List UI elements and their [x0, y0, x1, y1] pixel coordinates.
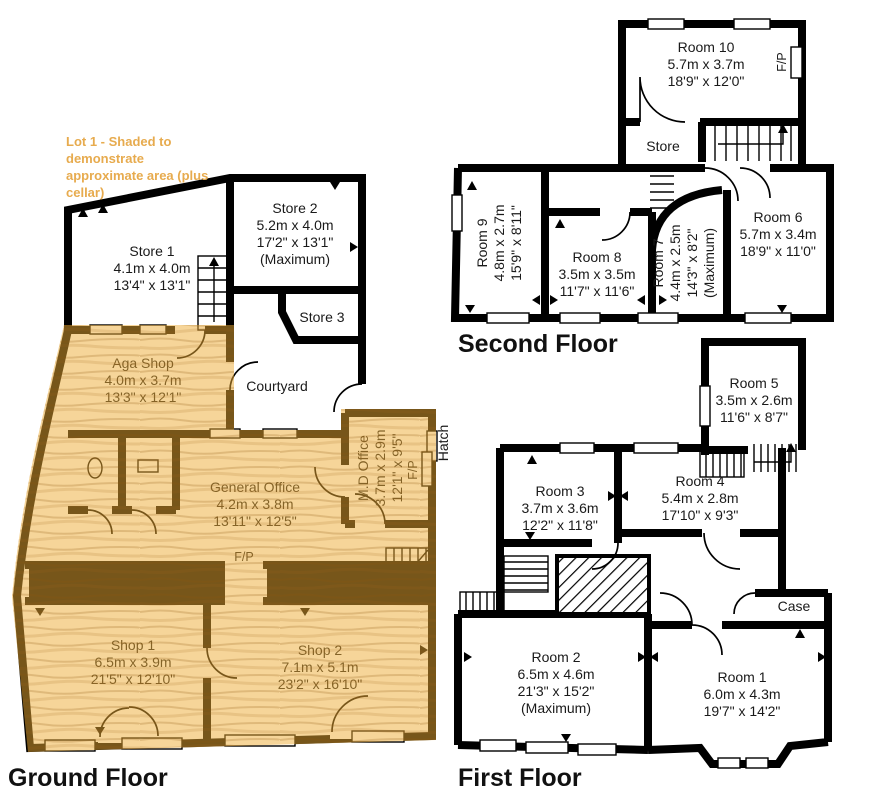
room-name: Room 7: [650, 238, 666, 287]
lot1-note-line: demonstrate: [66, 151, 144, 166]
room-label-room-10: Room 10 5.7m x 3.7m 18'9" x 12'0": [667, 39, 744, 89]
ground-floor-title: Ground Floor: [8, 764, 168, 792]
fp-label-room-10: F/P: [775, 52, 789, 71]
room10-fp-box: [791, 47, 802, 78]
ground-floor-plan: Store 1 4.1m x 4.0m 13'4" x 13'1" Store …: [8, 134, 451, 792]
lot1-note-line: cellar): [66, 185, 104, 200]
second-floor-title: Second Floor: [458, 330, 618, 358]
hatched-void-block: [557, 556, 649, 614]
room-imperial: 21'3" x 15'2": [518, 683, 595, 699]
lot1-woodgrain-texture: [12, 325, 436, 752]
room-imperial: 19'7" x 14'2": [704, 703, 781, 719]
lot1-note-line: Lot 1 - Shaded to: [66, 134, 172, 149]
room-name: Store 1: [129, 243, 174, 259]
room-metric: 3.7m x 3.6m: [521, 500, 598, 516]
room-metric: 5.2m x 4.0m: [256, 217, 333, 233]
room-name: Room 4: [675, 473, 724, 489]
room-imperial: 17'2" x 13'1": [257, 234, 334, 250]
room-imperial: 12'2" x 11'8": [522, 517, 598, 533]
room-name: Room 5: [729, 375, 778, 391]
first-floor-title: First Floor: [458, 764, 582, 792]
room-metric: 5.7m x 3.4m: [739, 226, 816, 242]
hatch-label: Hatch: [435, 425, 451, 462]
room-label-courtyard: Courtyard: [246, 378, 307, 394]
room-note: (Maximum): [260, 251, 330, 267]
room-imperial: 14'3" x 8'2": [684, 228, 700, 297]
room-metric: 3.5m x 3.5m: [558, 266, 635, 282]
second-floor-plan: Room 10 5.7m x 3.7m 18'9" x 12'0" F/P St…: [452, 19, 830, 358]
room-imperial: 17'10" x 9'3": [662, 507, 739, 523]
lot1-note-line: approximate area (plus: [66, 168, 208, 183]
room-imperial: 18'9" x 11'0": [740, 243, 816, 259]
room-metric: 5.4m x 2.8m: [661, 490, 738, 506]
room-name: Room 10: [678, 39, 735, 55]
room-name: Store 2: [272, 200, 317, 216]
room-name: Room 1: [717, 669, 766, 685]
first-floor-plan: Room 5 3.5m x 2.6m 11'6" x 8'7" Room 3 3…: [458, 342, 828, 792]
floorplan-page: Store 1 4.1m x 4.0m 13'4" x 13'1" Store …: [0, 0, 871, 800]
room-metric: 5.7m x 3.7m: [667, 56, 744, 72]
room-imperial: 18'9" x 12'0": [668, 73, 745, 89]
room-imperial: 15'9" x 8'11": [508, 205, 524, 281]
room-note: (Maximum): [521, 700, 591, 716]
room-metric: 4.1m x 4.0m: [113, 260, 190, 276]
room-metric: 4.8m x 2.7m: [491, 204, 507, 281]
floorplan-drawing: Store 1 4.1m x 4.0m 13'4" x 13'1" Store …: [0, 0, 871, 800]
room-imperial: 13'4" x 13'1": [114, 277, 191, 293]
room-metric: 6.0m x 4.3m: [703, 686, 780, 702]
room-imperial: 11'6" x 8'7": [720, 409, 788, 425]
room-imperial: 11'7" x 11'6": [560, 283, 635, 299]
room-name: Room 2: [531, 649, 580, 665]
room-label-case: Case: [778, 598, 811, 614]
room-note: (Maximum): [701, 228, 717, 298]
room-metric: 6.5m x 4.6m: [517, 666, 594, 682]
room-name: Room 6: [753, 209, 802, 225]
room-metric: 4.4m x 2.5m: [667, 224, 683, 301]
room-name: Room 3: [535, 483, 584, 499]
room-label-store-3: Store 3: [299, 309, 344, 325]
room-metric: 3.5m x 2.6m: [715, 392, 792, 408]
room-label-store: Store: [646, 138, 680, 154]
room-name: Room 9: [474, 218, 490, 267]
room-name: Room 8: [572, 249, 621, 265]
